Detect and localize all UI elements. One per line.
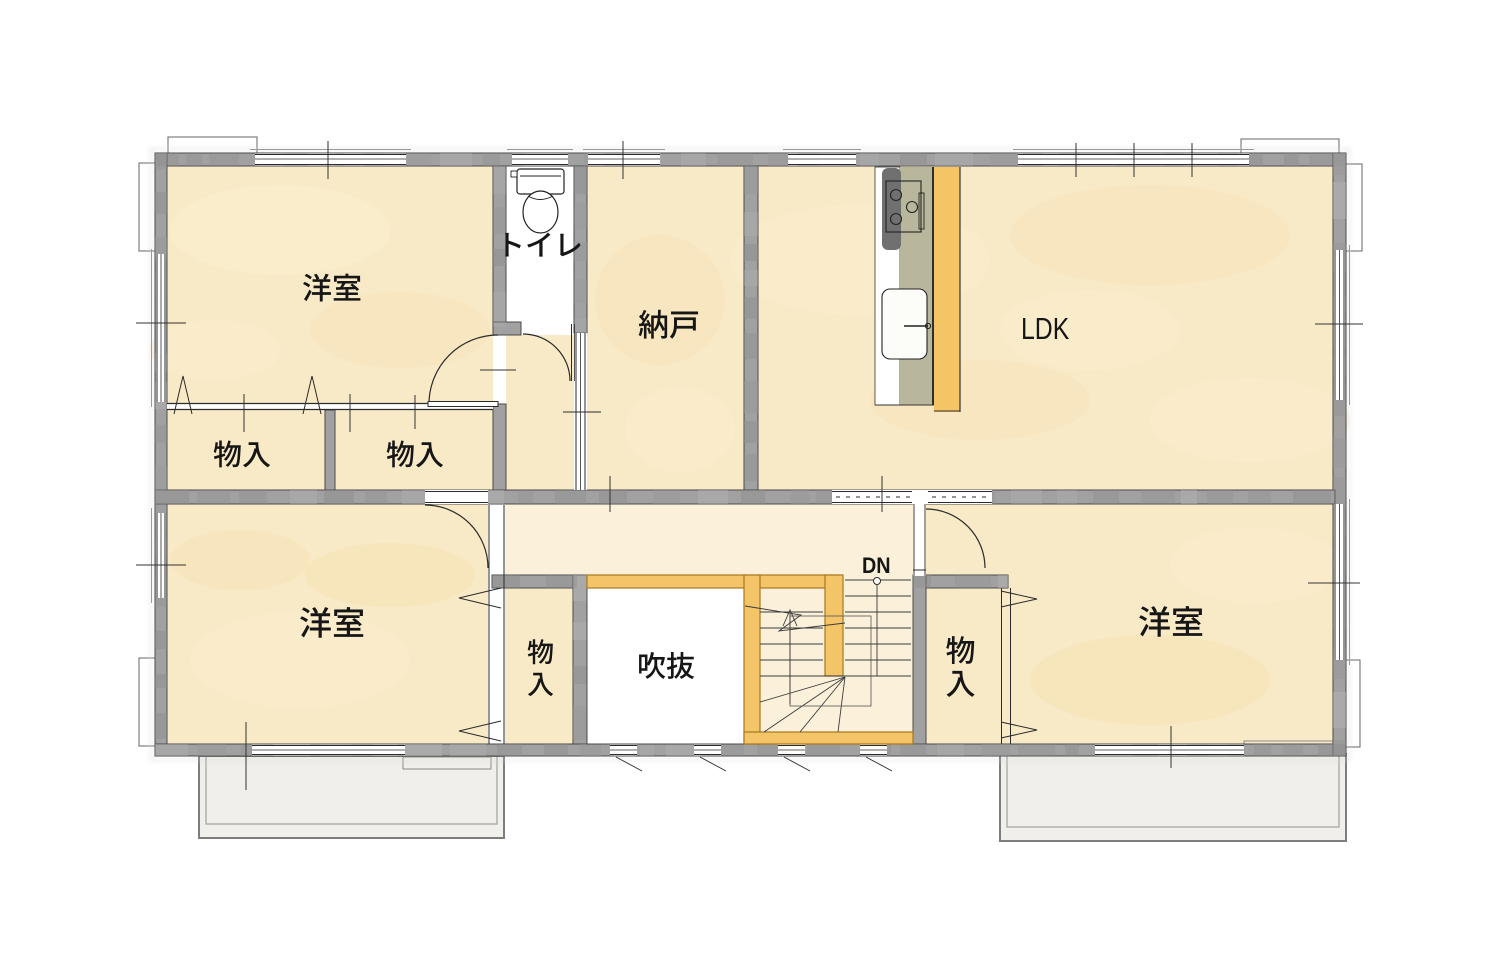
- svg-text:LDK: LDK: [1021, 311, 1069, 345]
- svg-text:DN: DN: [862, 554, 891, 578]
